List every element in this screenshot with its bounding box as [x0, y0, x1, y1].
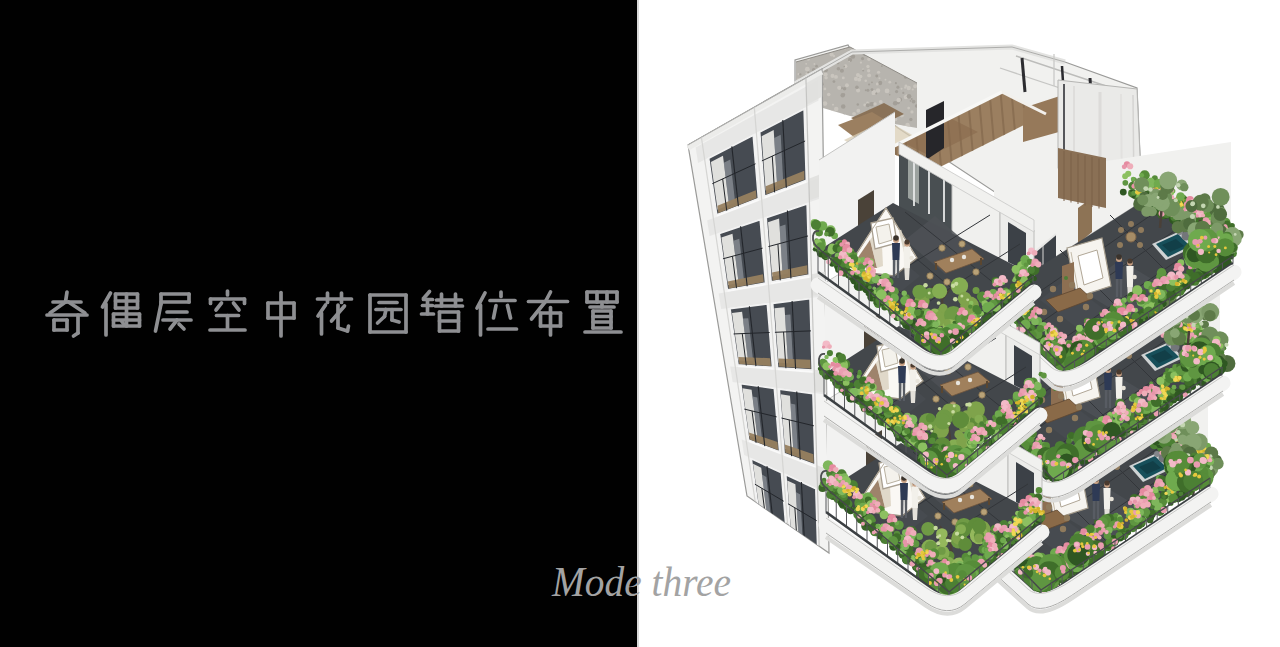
svg-text:Mode three: Mode three	[551, 558, 731, 605]
